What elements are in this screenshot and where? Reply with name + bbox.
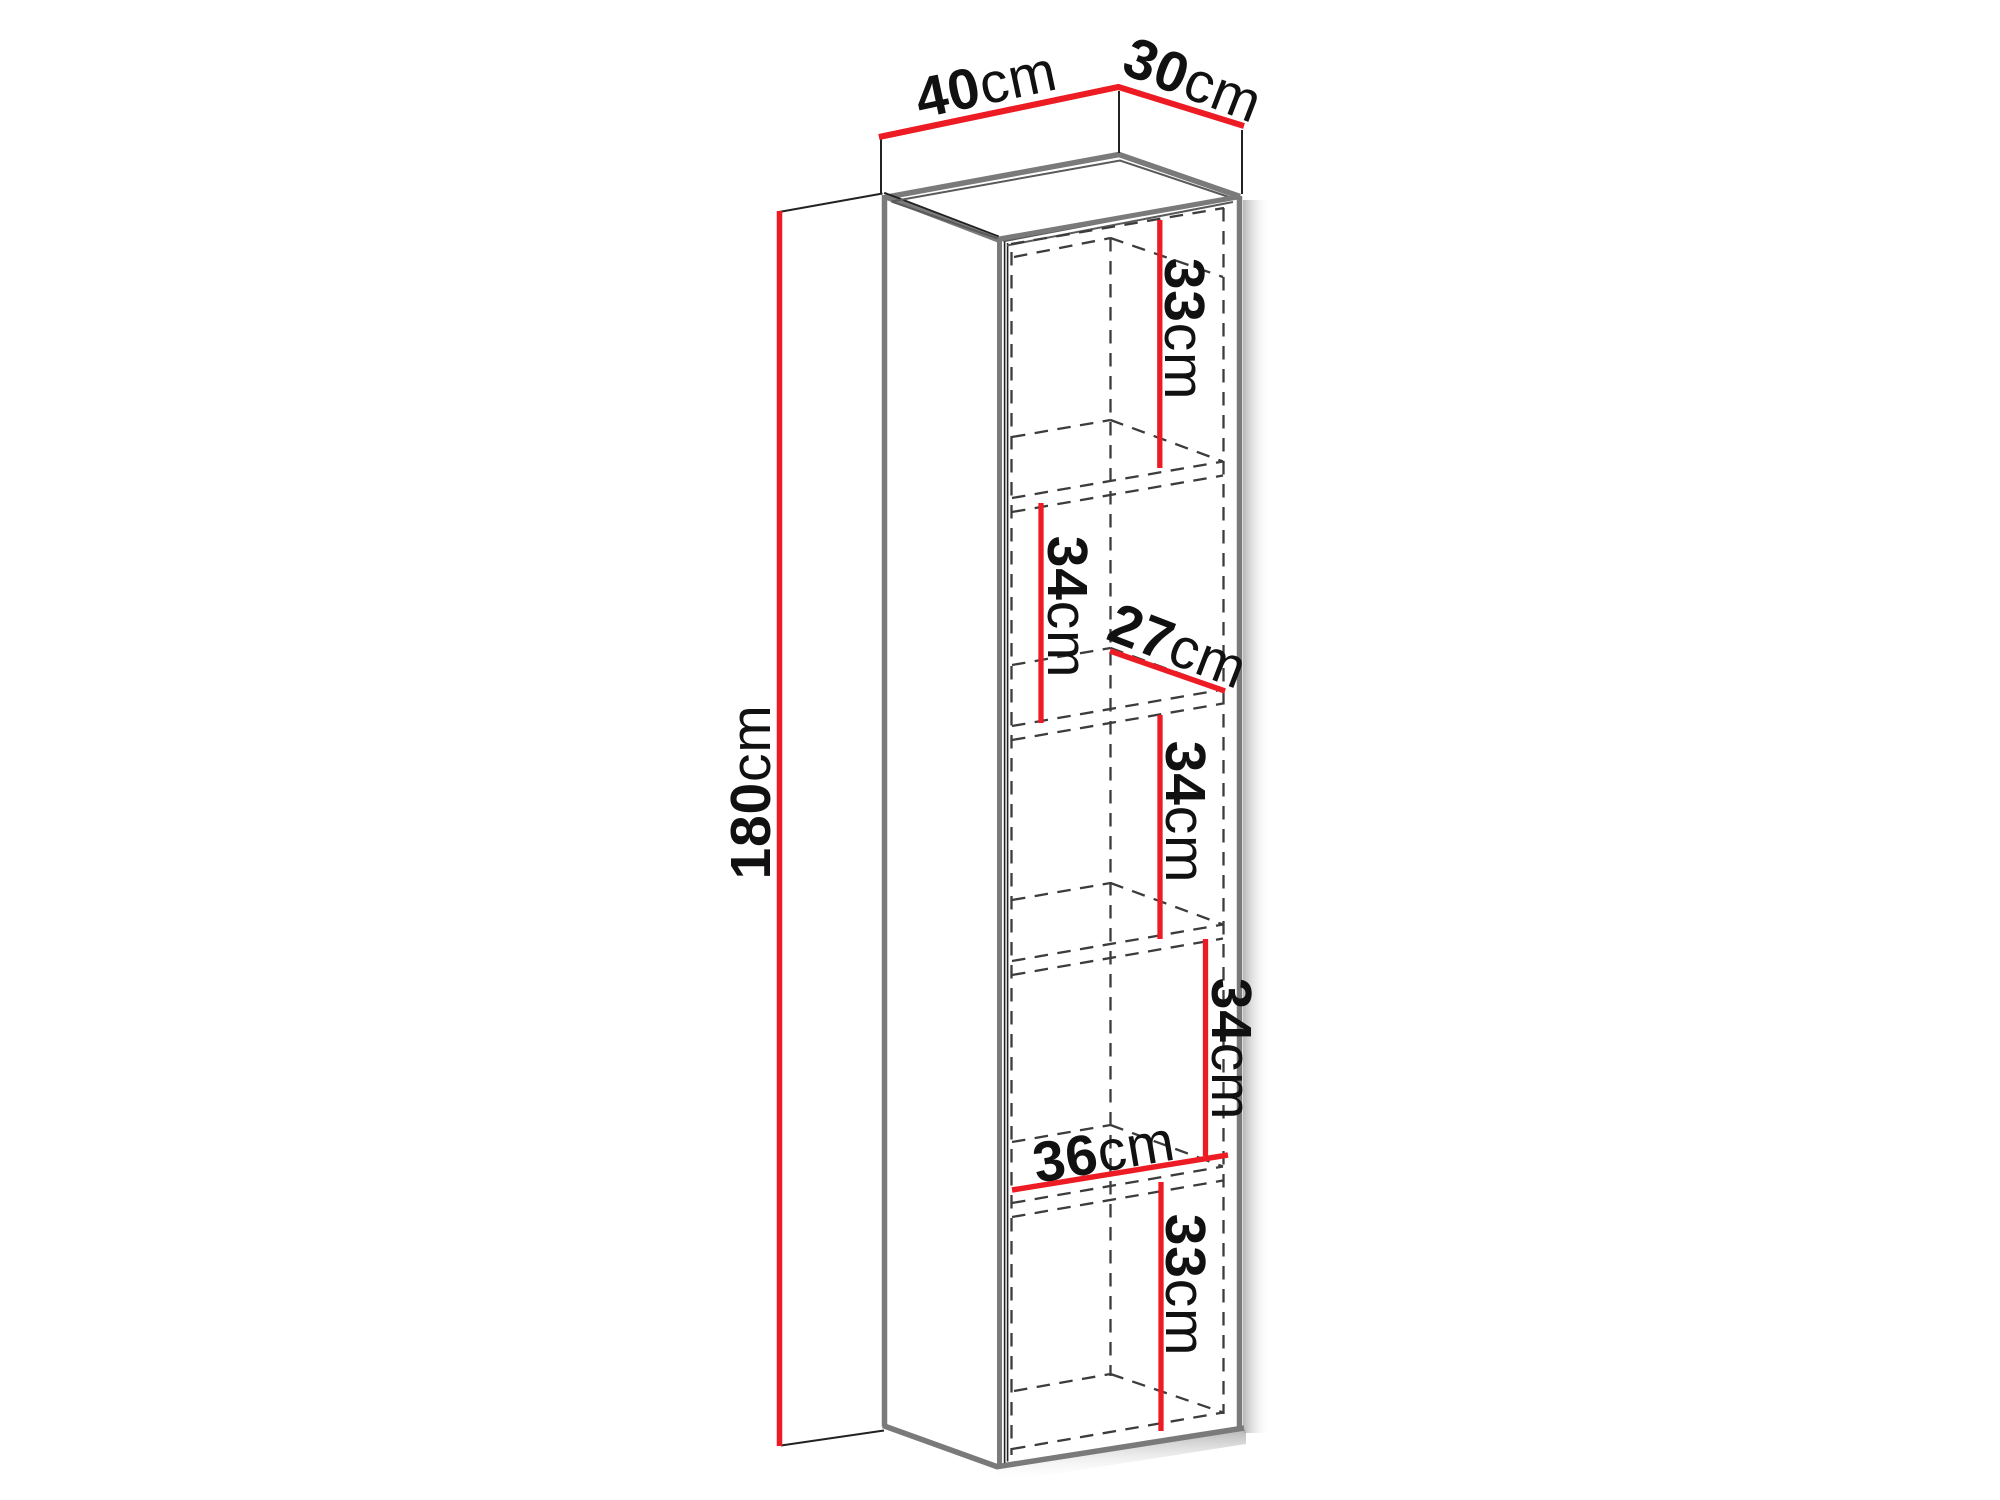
- svg-text:180cm: 180cm: [719, 704, 783, 879]
- svg-text:33cm: 33cm: [1153, 1214, 1217, 1357]
- svg-text:34cm: 34cm: [1199, 978, 1263, 1121]
- svg-text:34cm: 34cm: [1035, 536, 1099, 679]
- svg-text:34cm: 34cm: [1153, 741, 1217, 884]
- svg-text:33cm: 33cm: [1152, 258, 1216, 401]
